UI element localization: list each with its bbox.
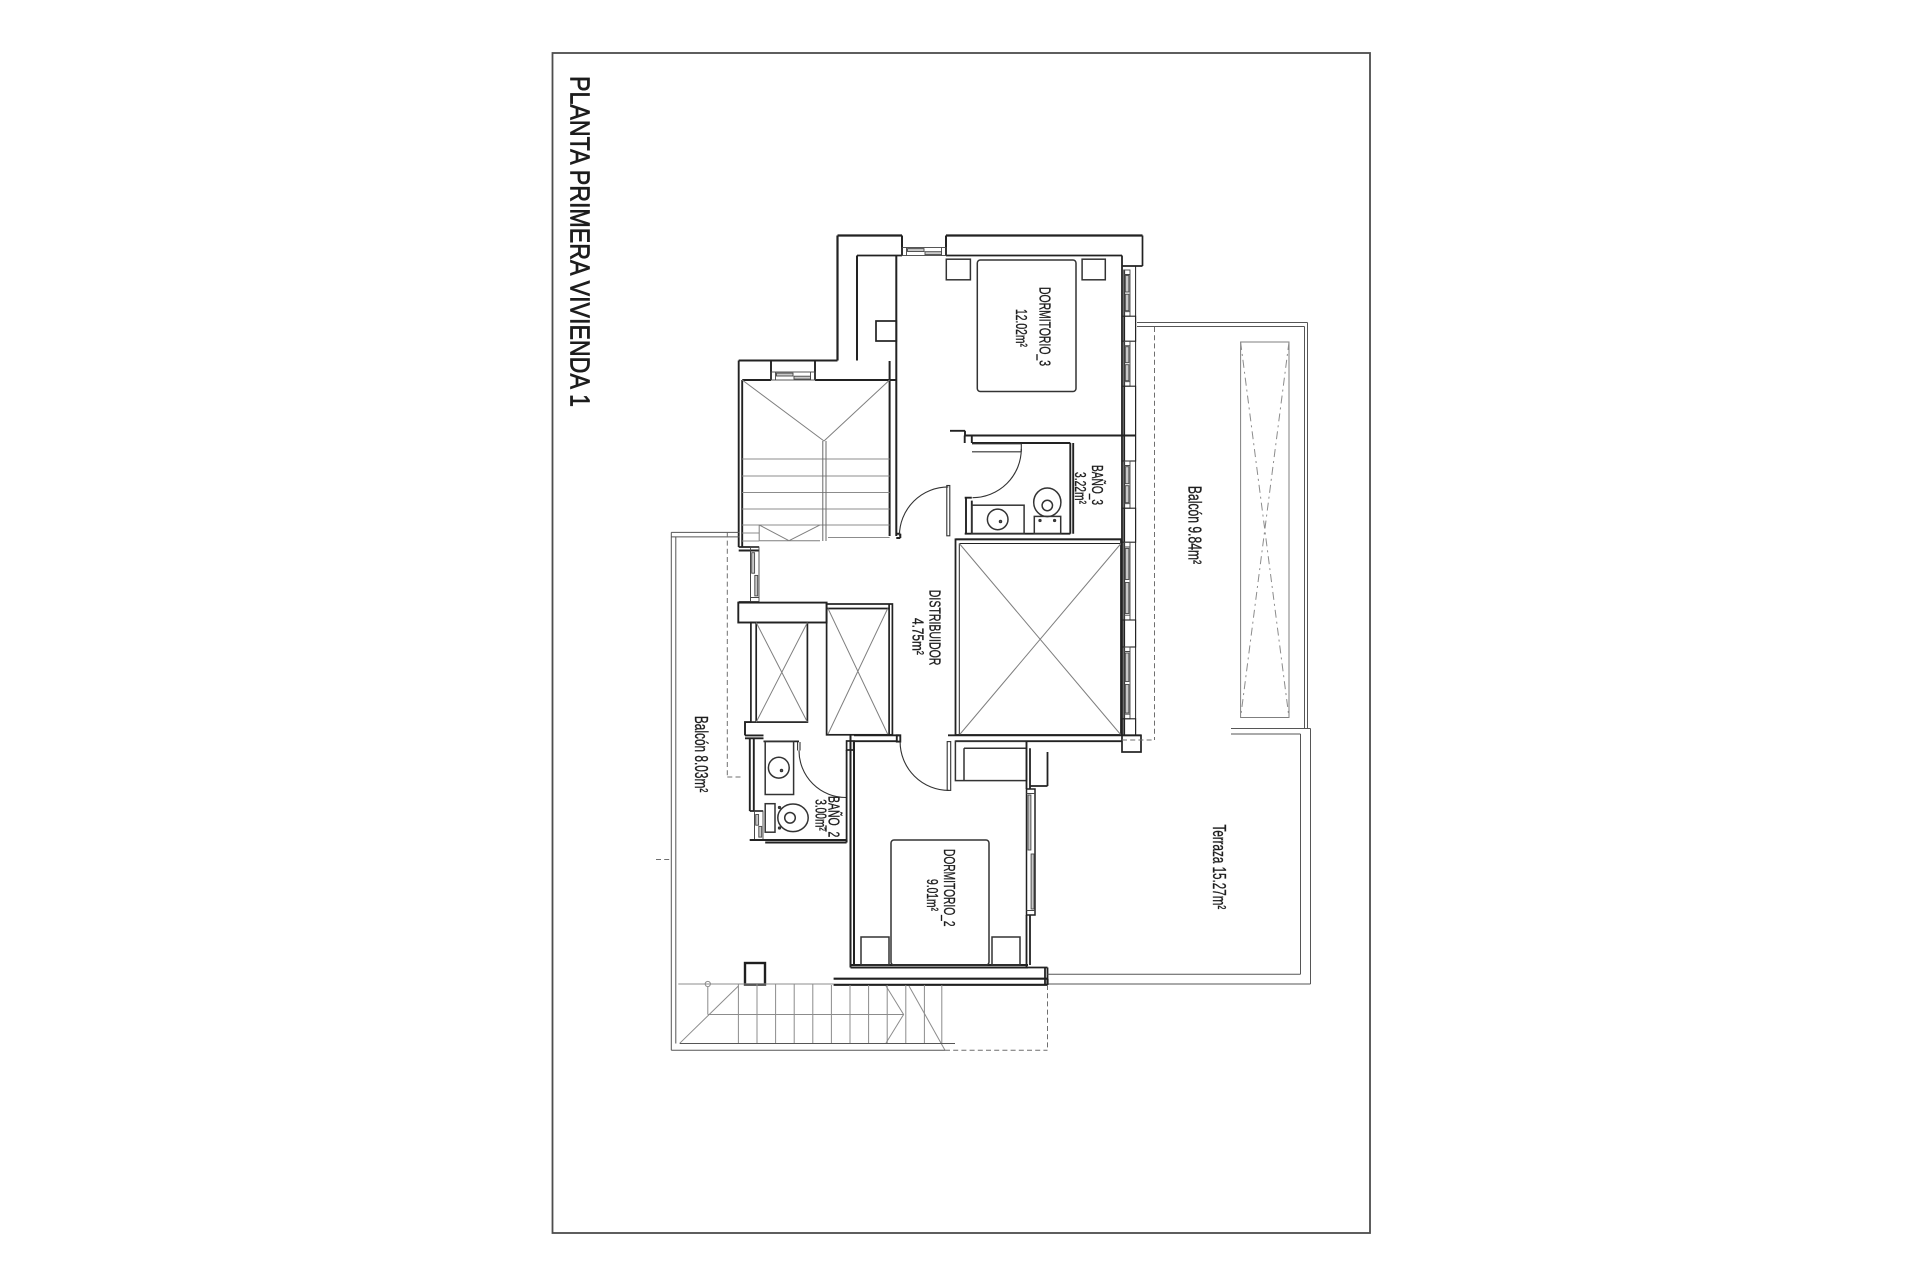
svg-text:DISTRIBUIDOR: DISTRIBUIDOR [926, 590, 943, 666]
svg-text:12.02m²: 12.02m² [1012, 309, 1029, 347]
svg-text:Balcón 8.03m²: Balcón 8.03m² [691, 716, 712, 792]
svg-text:9.01m²: 9.01m² [923, 879, 940, 911]
svg-text:Balcón 9.84m²: Balcón 9.84m² [1184, 486, 1205, 564]
svg-text:4.75m²: 4.75m² [908, 618, 925, 655]
svg-text:PLANTA PRIMERA VIVIENDA 1: PLANTA PRIMERA VIVIENDA 1 [565, 76, 596, 407]
svg-text:DORMITORIO_2: DORMITORIO_2 [940, 849, 957, 927]
svg-text:BAÑO_3: BAÑO_3 [1088, 465, 1108, 505]
svg-text:3.22m²: 3.22m² [1071, 472, 1088, 504]
svg-text:3.00m²: 3.00m² [812, 799, 829, 831]
svg-text:Terraza 15.27m²: Terraza 15.27m² [1209, 825, 1230, 910]
svg-text:DORMITORIO_3: DORMITORIO_3 [1036, 287, 1053, 366]
